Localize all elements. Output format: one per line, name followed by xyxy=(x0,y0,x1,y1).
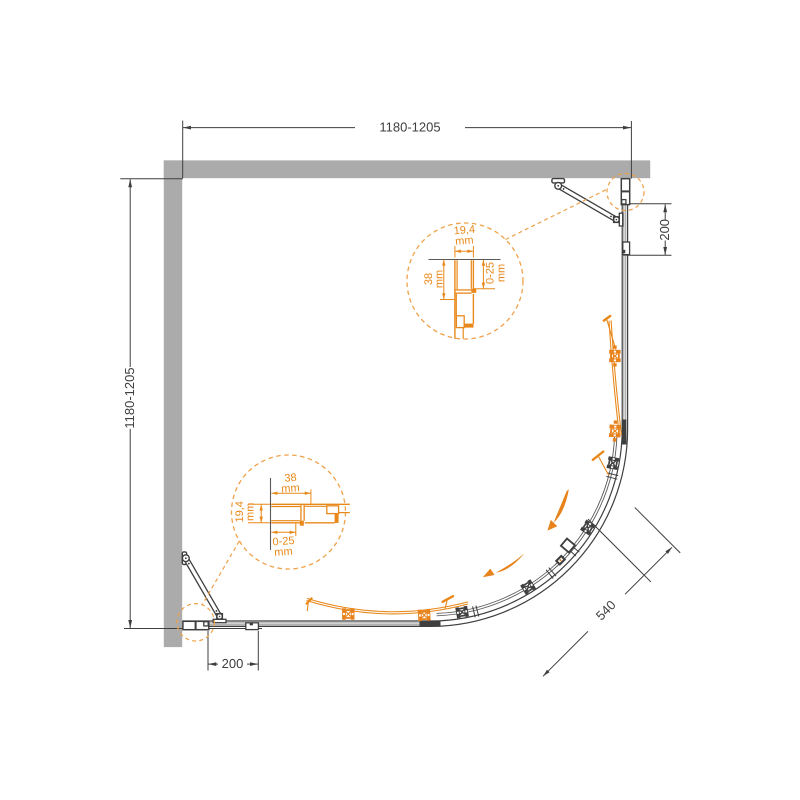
svg-text:mm: mm xyxy=(495,264,507,282)
svg-text:200: 200 xyxy=(657,219,672,241)
svg-text:mm: mm xyxy=(455,234,474,248)
svg-text:mm: mm xyxy=(244,503,256,521)
svg-text:1180-1205: 1180-1205 xyxy=(122,367,137,428)
svg-text:200: 200 xyxy=(222,656,244,671)
svg-text:mm: mm xyxy=(281,482,300,495)
svg-text:mm: mm xyxy=(274,546,293,559)
svg-text:1180-1205: 1180-1205 xyxy=(379,120,440,135)
svg-text:mm: mm xyxy=(433,270,445,288)
